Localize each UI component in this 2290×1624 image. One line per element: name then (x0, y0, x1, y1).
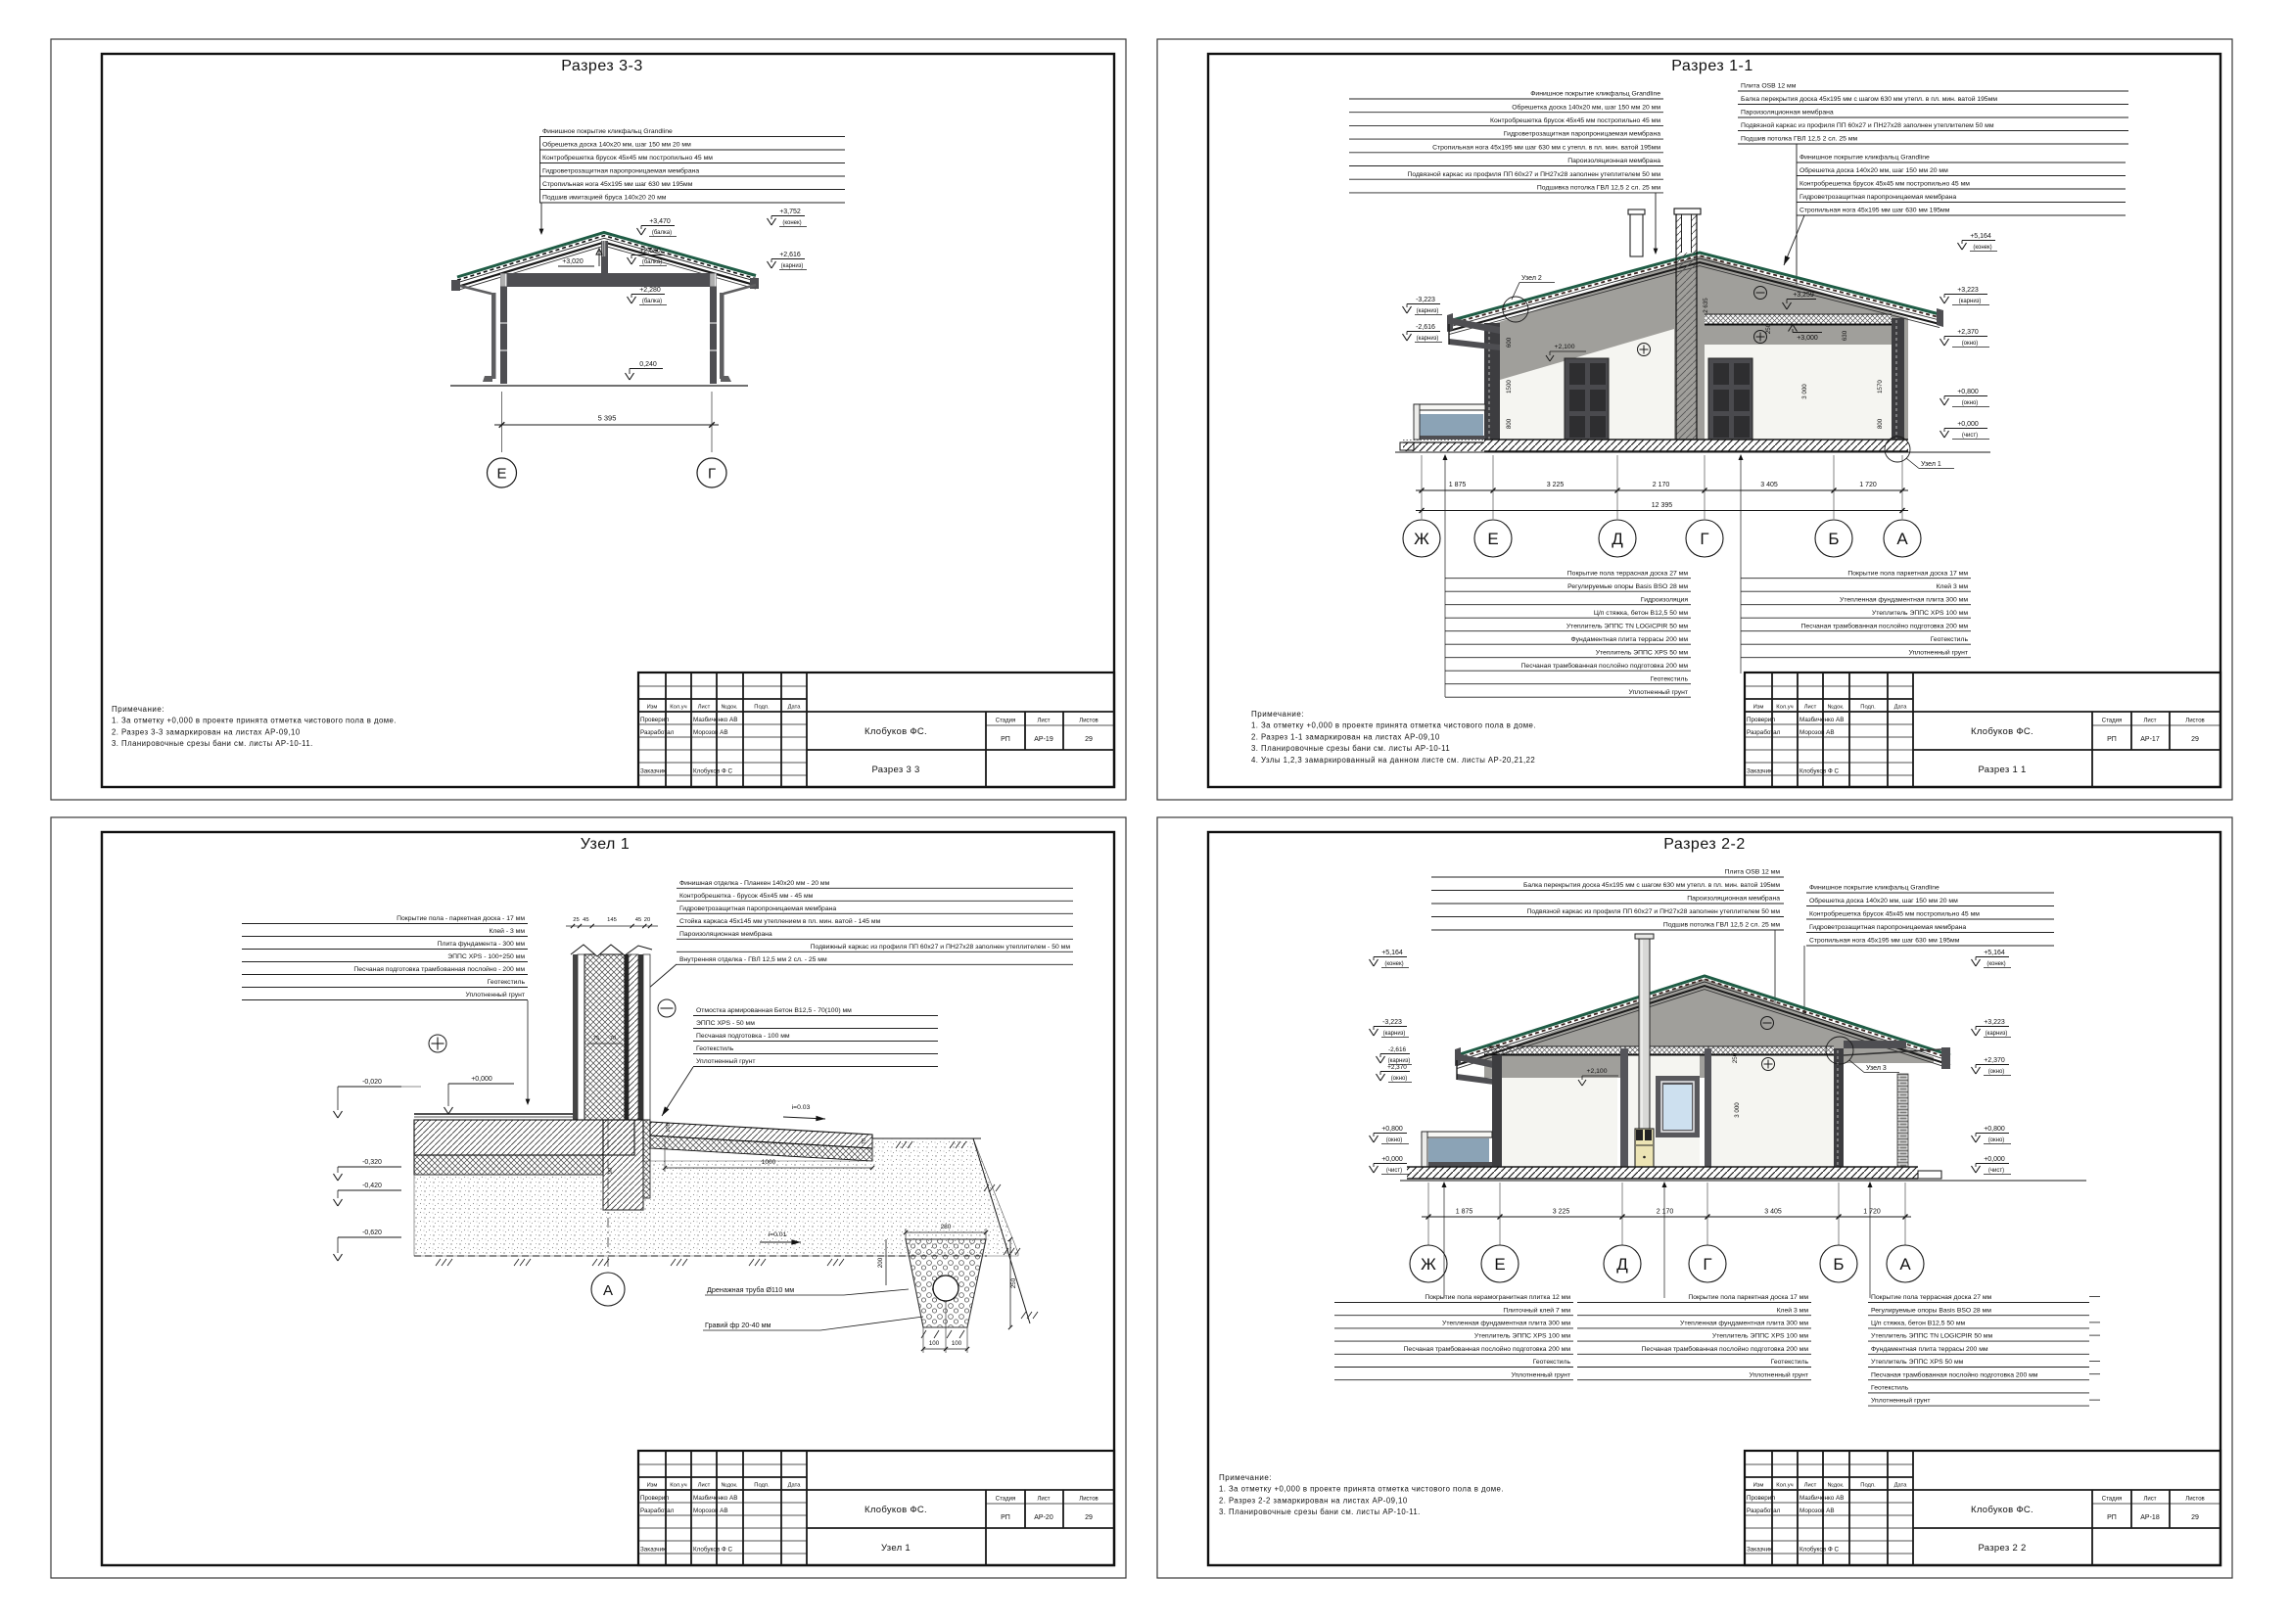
svg-text:Контробрешетка брусок 45х45: Контробрешетка брусок 45х45 мм постропил… (542, 154, 713, 162)
svg-text:Изм: Изм (647, 1483, 658, 1489)
svg-text:Стропильная нога 45х195 мм шаг: Стропильная нога 45х195 мм шаг 630 мм 19… (542, 181, 693, 188)
svg-text:(окно): (окно) (1386, 1137, 1403, 1143)
svg-text:Разрез 1-1: Разрез 1-1 (1671, 58, 1753, 74)
svg-text:Утеплитель ЭППС XPS 100 мм: Утеплитель ЭППС XPS 100 мм (1474, 1333, 1570, 1340)
svg-text:Гидроветрозащитная паропроница: Гидроветрозащитная паропроницаемая мембр… (1504, 130, 1660, 138)
svg-text:Мазбиченко АВ: Мазбиченко АВ (693, 1494, 737, 1502)
svg-text:Уплотненный грунт: Уплотненный грунт (696, 1057, 756, 1065)
svg-text:Подвязной каркас из профиля ПП: Подвязной каркас из профиля ПП 60х27 и П… (1741, 121, 1994, 129)
svg-text:А: А (1896, 530, 1908, 548)
svg-text:Подшивка потолка ГВЛ 12,5: Подшивка потолка ГВЛ 12,5 2 сл. 25 мм (1537, 185, 1660, 192)
svg-text:Пароизоляционная мембрана: Пароизоляционная мембрана (679, 930, 772, 938)
svg-text:Уплотненный грунт: Уплотненный грунт (465, 991, 525, 998)
svg-text:(балка): (балка) (652, 230, 672, 236)
svg-text:Песчаная трамбованная послойно: Песчаная трамбованная послойно подготовк… (1404, 1345, 1571, 1353)
svg-text:Клобуков ФС.: Клобуков ФС. (865, 1505, 927, 1515)
svg-text:Изм: Изм (1753, 1483, 1764, 1489)
svg-text:Подвязной каркас из профиля ПП: Подвязной каркас из профиля ПП 60х27 и П… (1407, 170, 1660, 178)
svg-text:Кол.уч: Кол.уч (1776, 1483, 1793, 1489)
svg-text:А: А (1899, 1255, 1911, 1274)
svg-text:2. Разрез 2-2 замаркирован на: 2. Разрез 2-2 замаркирован на листах АР-… (1219, 1496, 1408, 1505)
svg-text:Проверил: Проверил (1747, 717, 1775, 723)
svg-text:1500: 1500 (1506, 380, 1513, 394)
svg-text:Заказчик: Заказчик (1747, 1547, 1772, 1554)
svg-text:Клобуков ФС.: Клобуков ФС. (1971, 726, 2033, 737)
svg-text:Морозов АВ: Морозов АВ (1799, 1508, 1835, 1514)
svg-text:(карниз): (карниз) (1417, 308, 1439, 314)
svg-text:ЭППС XPS - 50 мм: ЭППС XPS - 50 мм (696, 1020, 755, 1027)
svg-text:А: А (603, 1282, 613, 1299)
svg-text:(карниз): (карниз) (1383, 1031, 1406, 1037)
svg-text:i=0.03: i=0.03 (792, 1104, 811, 1111)
svg-text:3 405: 3 405 (1764, 1209, 1782, 1216)
svg-text:Стропильная нога 45х195 мм шаг: Стропильная нога 45х195 мм шаг 630 мм 19… (1799, 208, 1950, 214)
svg-text:Дата: Дата (788, 1483, 802, 1489)
svg-text:Проверил: Проверил (640, 1495, 669, 1502)
svg-text:(конек): (конек) (1384, 961, 1403, 967)
svg-text:ЭППС XPS - 100÷250 мм: ЭППС XPS - 100÷250 мм (447, 953, 525, 960)
svg-text:Финишное покрытие кликфальц: Финишное покрытие кликфальц Grandline (1530, 91, 1660, 98)
svg-text:Кол.уч: Кол.уч (1776, 705, 1793, 711)
svg-text:+3,223: +3,223 (1957, 287, 1979, 294)
svg-text:Плита OSB 12 мм: Плита OSB 12 мм (1741, 83, 1797, 90)
svg-text:1 875: 1 875 (1449, 482, 1467, 488)
svg-text:Уплотненный грунт: Уплотненный грунт (1749, 1370, 1808, 1378)
svg-text:Разработал: Разработал (640, 1507, 675, 1514)
svg-text:0,240: 0,240 (639, 361, 657, 368)
svg-text:Разрез 1 1: Разрез 1 1 (1978, 765, 2026, 775)
svg-text:(карниз): (карниз) (1417, 336, 1439, 342)
svg-text:250: 250 (1765, 323, 1772, 334)
svg-text:Песчаная трамбованная послойно: Песчаная трамбованная послойно подготовк… (1521, 662, 1689, 670)
svg-text:29: 29 (1085, 1514, 1093, 1521)
svg-text:Песчаная подготовка трамбованн: Песчаная подготовка трамбованная послойн… (353, 965, 525, 973)
svg-text:Гравий фр 20-40 мм: Гравий фр 20-40 мм (705, 1321, 771, 1329)
svg-text:Заказчик: Заказчик (640, 768, 666, 775)
svg-text:Кол.уч: Кол.уч (670, 705, 686, 711)
svg-text:Плиточный клей 7 мм: Плиточный клей 7 мм (1503, 1306, 1570, 1314)
svg-text:+2,370: +2,370 (1387, 1064, 1407, 1071)
svg-text:Утеплитель ЭППС XPS 50 мм: Утеплитель ЭППС XPS 50 мм (1871, 1359, 1964, 1366)
svg-text:АР-17: АР-17 (2140, 736, 2160, 743)
svg-text:Стадия: Стадия (2102, 1497, 2122, 1503)
svg-text:(конек): (конек) (1973, 245, 1991, 251)
svg-text:Лист: Лист (1804, 1483, 1817, 1489)
svg-text:+3,000: +3,000 (1797, 335, 1818, 342)
svg-text:Лист: Лист (2143, 1497, 2156, 1503)
svg-text:АР-18: АР-18 (2140, 1514, 2160, 1521)
svg-text:Клобуков Ф С: Клобуков Ф С (1799, 767, 1839, 775)
svg-text:250: 250 (1010, 1277, 1017, 1288)
svg-text:1. За отметку +0,000 в проекте: 1. За отметку +0,000 в проекте принята о… (1251, 721, 1536, 730)
svg-text:Подп.: Подп. (754, 705, 770, 711)
svg-text:Стадия: Стадия (996, 719, 1015, 724)
svg-text:+0,000: +0,000 (1984, 1156, 2005, 1163)
svg-text:+0,800: +0,800 (1381, 1126, 1403, 1133)
svg-text:Разрез 2 2: Разрез 2 2 (1978, 1543, 2026, 1554)
svg-text:Подшив потолка ГВЛ 12,5 2: Подшив потолка ГВЛ 12,5 2 сл. 25 мм (1663, 922, 1781, 929)
svg-text:-0,620: -0,620 (362, 1230, 382, 1236)
svg-text:Стойка каркаса 45х145 мм утепл: Стойка каркаса 45х145 мм утеплением в пл… (679, 917, 881, 925)
svg-text:Стропильная нога 45х195 мм шаг: Стропильная нога 45х195 мм шаг 630 мм 19… (1809, 938, 1960, 945)
svg-text:Е: Е (496, 466, 506, 483)
svg-text:Покрытие пола паркетная дос: Покрытие пола паркетная доска 17 мм (1847, 570, 1968, 577)
svg-text:Геотекстиль: Геотекстиль (1771, 1359, 1809, 1366)
svg-text:Фундаментная плита террасы: Фундаментная плита террасы 200 мм (1871, 1346, 1988, 1353)
svg-text:1 720: 1 720 (1863, 1209, 1881, 1216)
svg-text:Гидроизоляция: Гидроизоляция (1641, 596, 1688, 603)
svg-text:70: 70 (862, 1138, 867, 1144)
svg-text:Морозов АВ: Морозов АВ (693, 729, 728, 736)
svg-text:Листов: Листов (1079, 719, 1098, 724)
svg-text:Разрез 3-3: Разрез 3-3 (561, 58, 643, 74)
svg-text:+2,680: +2,680 (639, 248, 661, 255)
svg-text:АР-19: АР-19 (1034, 736, 1053, 743)
svg-text:-0,420: -0,420 (362, 1183, 382, 1189)
svg-text:Дата: Дата (1894, 1483, 1908, 1489)
svg-text:Подп.: Подп. (1860, 705, 1876, 711)
svg-text:600: 600 (1506, 337, 1513, 348)
svg-text:Геотекстиль: Геотекстиль (488, 979, 526, 986)
svg-text:-3,223: -3,223 (1382, 1019, 1402, 1026)
svg-text:Примечание:: Примечание: (112, 705, 164, 714)
svg-text:(карниз): (карниз) (1959, 299, 1982, 304)
svg-text:Е: Е (1487, 530, 1498, 548)
svg-text:Проверил: Проверил (1747, 1495, 1775, 1502)
svg-text:(карниз): (карниз) (1986, 1031, 2008, 1037)
svg-text:(чист): (чист) (1386, 1168, 1402, 1174)
svg-text:Стадия: Стадия (996, 1497, 1015, 1503)
svg-text:630: 630 (1842, 330, 1848, 341)
svg-text:Дата: Дата (788, 705, 802, 711)
svg-text:Клобуков Ф С: Клобуков Ф С (693, 1546, 732, 1554)
svg-text:Обрешетка доска 140х20 мм,: Обрешетка доска 140х20 мм, шаг 150 мм 20… (1799, 166, 1948, 174)
svg-text:Песчаная подготовка - 100 мм: Песчаная подготовка - 100 мм (696, 1033, 790, 1040)
svg-text:800: 800 (1877, 418, 1884, 429)
svg-text:Внутренняя отделка - ГВЛ 12,5: Внутренняя отделка - ГВЛ 12,5 мм 2 сл. -… (679, 956, 827, 963)
svg-text:Проверил: Проверил (640, 717, 669, 723)
svg-text:Б: Б (1833, 1255, 1844, 1274)
svg-text:Геотекстиль: Геотекстиль (696, 1045, 734, 1052)
svg-text:Е: Е (1494, 1255, 1505, 1274)
svg-text:Отмостка армированная Бетон В: Отмостка армированная Бетон В12,5 - 70(1… (696, 1007, 852, 1014)
svg-text:+0,000: +0,000 (471, 1076, 492, 1083)
svg-text:Лист: Лист (2143, 719, 2156, 724)
svg-text:Узел 1: Узел 1 (581, 836, 630, 853)
svg-text:Ж: Ж (1421, 1255, 1436, 1274)
svg-text:12 395: 12 395 (1652, 502, 1673, 509)
svg-text:+0,800: +0,800 (1957, 389, 1979, 395)
svg-text:-2,616: -2,616 (1388, 1046, 1407, 1053)
svg-text:(балка): (балка) (642, 299, 662, 304)
svg-text:-0,020: -0,020 (362, 1079, 382, 1086)
svg-text:Г: Г (1700, 530, 1708, 548)
svg-text:Разработал: Разработал (1747, 1507, 1781, 1514)
svg-text:145: 145 (607, 917, 617, 923)
svg-text:+0,000: +0,000 (1381, 1156, 1403, 1163)
svg-text:Лист: Лист (698, 1483, 711, 1489)
svg-text:Лист: Лист (1037, 719, 1050, 724)
svg-text:1 720: 1 720 (1859, 482, 1877, 488)
svg-text:Примечание:: Примечание: (1251, 710, 1304, 719)
svg-text:+2,100: +2,100 (1555, 344, 1575, 350)
svg-text:1 875: 1 875 (1456, 1209, 1473, 1216)
svg-text:70: 70 (610, 1036, 616, 1042)
svg-text:(окно): (окно) (1988, 1069, 2005, 1075)
svg-text:Гидроветрозащитная паропроница: Гидроветрозащитная паропроницаемая мембр… (679, 905, 836, 912)
svg-text:Стадия: Стадия (2102, 719, 2122, 724)
svg-text:Разрез 3 3: Разрез 3 3 (871, 765, 919, 775)
svg-text:-3,223: -3,223 (1416, 297, 1435, 303)
svg-text:Клобуков ФС.: Клобуков ФС. (1971, 1505, 2033, 1515)
svg-text:Клобуков Ф С: Клобуков Ф С (693, 767, 732, 775)
svg-text:Ж: Ж (1414, 530, 1429, 548)
svg-text:РП: РП (1001, 736, 1010, 743)
svg-text:Изм: Изм (647, 705, 658, 711)
svg-text:Б: Б (1828, 530, 1839, 548)
svg-text:75: 75 (593, 1036, 599, 1042)
svg-text:+0,800: +0,800 (1984, 1126, 2005, 1133)
svg-text:(окно): (окно) (1962, 400, 1979, 406)
svg-text:2 170: 2 170 (1657, 1209, 1674, 1216)
svg-text:2. Разрез 3-3 замаркирован на: 2. Разрез 3-3 замаркирован на листах АР-… (112, 727, 301, 736)
svg-text:Геотекстиль: Геотекстиль (1871, 1385, 1909, 1392)
svg-text:(окно): (окно) (1391, 1076, 1408, 1082)
svg-text:+3,259: +3,259 (1793, 292, 1814, 299)
svg-text:Пароизоляционная мембрана: Пароизоляционная мембрана (1687, 895, 1780, 903)
svg-text:Узел 1: Узел 1 (1921, 461, 1941, 468)
svg-text:Пароизоляционная мембрана: Пароизоляционная мембрана (1567, 157, 1660, 164)
svg-text:Финишное покрытие кликфальц: Финишное покрытие кликфальц Grandline (1809, 885, 1939, 892)
svg-text:Мазбиченко АВ: Мазбиченко АВ (693, 716, 737, 723)
svg-text:Морозов АВ: Морозов АВ (1799, 729, 1835, 736)
svg-text:(конек): (конек) (782, 220, 801, 226)
svg-text:Кол.уч: Кол.уч (670, 1483, 686, 1489)
svg-text:3 225: 3 225 (1547, 482, 1565, 488)
svg-text:Покрытие пола - паркетная доск: Покрытие пола - паркетная доска - 17 мм (397, 915, 525, 922)
svg-text:2 170: 2 170 (1653, 482, 1670, 488)
svg-text:(окно): (окно) (1988, 1137, 2005, 1143)
svg-text:Заказчик: Заказчик (1747, 768, 1772, 775)
svg-text:Покрытие пола паркетная дос: Покрытие пола паркетная доска 17 мм (1688, 1294, 1808, 1301)
svg-text:Обрешетка доска 140х20 мм,: Обрешетка доска 140х20 мм, шаг 150 мм 20… (1512, 103, 1660, 111)
svg-text:Геотекстиль: Геотекстиль (1533, 1359, 1571, 1366)
svg-text:Утеплитель ЭППС TN LOGICPIR: Утеплитель ЭППС TN LOGICPIR 50 мм (1871, 1333, 1992, 1340)
svg-text:45: 45 (635, 917, 641, 923)
svg-text:Изм: Изм (1753, 705, 1764, 711)
svg-text:Геотекстиль: Геотекстиль (1931, 636, 1969, 643)
svg-text:Пароизоляционная мембрана: Пароизоляционная мембрана (1741, 109, 1834, 116)
svg-text:РП: РП (1001, 1514, 1010, 1521)
svg-text:Контробрешетка - брусок 45х45: Контробрешетка - брусок 45х45 мм - 45 мм (679, 892, 814, 900)
svg-text:90: 90 (608, 1168, 614, 1174)
svg-text:Узел 3: Узел 3 (1866, 1065, 1887, 1072)
svg-text:№док.: №док. (1828, 1483, 1845, 1489)
svg-text:Финишная отделка - Планкен 140: Финишная отделка - Планкен 140х20 мм - 2… (679, 880, 830, 887)
svg-text:200: 200 (877, 1257, 884, 1268)
svg-text:Контробрешетка брусок 45х45: Контробрешетка брусок 45х45 мм постропил… (1799, 180, 1970, 188)
svg-text:АР-20: АР-20 (1034, 1514, 1053, 1521)
svg-text:РП: РП (2107, 736, 2117, 743)
svg-text:Подп.: Подп. (1860, 1483, 1876, 1489)
svg-text:Утепленная фундаментная плита: Утепленная фундаментная плита 300 мм (1442, 1321, 1570, 1327)
svg-text:+3,020: +3,020 (562, 258, 584, 265)
svg-text:Узел 2: Узел 2 (1521, 275, 1542, 282)
svg-text:Разрез 2-2: Разрез 2-2 (1663, 836, 1746, 853)
svg-text:-2,616: -2,616 (1416, 324, 1435, 331)
svg-text:+3,223: +3,223 (1984, 1019, 2005, 1026)
svg-text:Обрешетка доска 140х20 мм,: Обрешетка доска 140х20 мм, шаг 150 мм 20… (542, 141, 691, 149)
svg-text:45: 45 (583, 917, 588, 923)
svg-text:Балка перекрытия доска 45х1: Балка перекрытия доска 45х195 мм с шагом… (1741, 95, 1997, 103)
svg-text:Г: Г (708, 466, 716, 483)
svg-text:Покрытие пола террасная дос: Покрытие пола террасная доска 27 мм (1871, 1294, 1992, 1301)
svg-text:3. Планировочные срезы бани см: 3. Планировочные срезы бани см. листы АР… (1251, 744, 1450, 753)
svg-text:Регулируемые опоры Basis BSO: Регулируемые опоры Basis BSO 28 мм (1567, 583, 1688, 590)
svg-text:+3,470: +3,470 (649, 218, 671, 225)
svg-text:(окно): (окно) (1962, 341, 1979, 347)
svg-text:Лист: Лист (698, 705, 711, 711)
svg-text:Клобуков ФС.: Клобуков ФС. (865, 726, 927, 737)
svg-text:Подвязной каркас из профиля ПП: Подвязной каркас из профиля ПП 60х27 и П… (1526, 907, 1780, 915)
svg-text:Гидроветрозащитная паропроница: Гидроветрозащитная паропроницаемая мембр… (1809, 923, 1966, 931)
svg-text:Узел 1: Узел 1 (881, 1543, 911, 1554)
svg-text:+0,000: +0,000 (1957, 421, 1979, 428)
svg-text:Финишное покрытие кликфальц: Финишное покрытие кликфальц Grandline (1799, 155, 1930, 162)
svg-text:3 225: 3 225 (1553, 1209, 1570, 1216)
svg-text:-0,320: -0,320 (362, 1159, 382, 1166)
svg-text:№док.: №док. (722, 705, 738, 711)
svg-text:29: 29 (2191, 736, 2199, 743)
svg-text:Д: Д (1612, 530, 1623, 548)
svg-text:Уплотненный грунт: Уплотненный грунт (1511, 1370, 1570, 1378)
svg-text:Песчаная трамбованная послойно: Песчаная трамбованная послойно подготовк… (1801, 622, 1969, 629)
svg-text:5 395: 5 395 (598, 414, 617, 423)
svg-text:100: 100 (929, 1340, 940, 1347)
svg-text:Утеплитель ЭППС TN LOGICPIR: Утеплитель ЭППС TN LOGICPIR 50 мм (1566, 623, 1688, 629)
svg-text:Балка перекрытия доска 45х1: Балка перекрытия доска 45х195 мм с шагом… (1523, 881, 1780, 889)
svg-text:Клей - 3 мм: Клей - 3 мм (489, 927, 525, 935)
svg-text:+2,370: +2,370 (1984, 1057, 2005, 1064)
svg-text:+5,164: +5,164 (1984, 950, 2005, 956)
svg-text:РП: РП (2107, 1514, 2117, 1521)
svg-text:1570: 1570 (1877, 380, 1884, 394)
svg-text:(конек): (конек) (1986, 961, 2005, 967)
svg-text:Контробрешетка брусок 45х45: Контробрешетка брусок 45х45 мм постропил… (1490, 116, 1660, 124)
svg-text:Гидроветрозащитная паропроница: Гидроветрозащитная паропроницаемая мембр… (542, 167, 699, 175)
svg-text:2. Разрез 1-1 замаркирован на: 2. Разрез 1-1 замаркирован на листах АР-… (1251, 732, 1440, 741)
svg-text:Песчаная трамбованная послойно: Песчаная трамбованная послойно подготовк… (1871, 1370, 2038, 1378)
svg-text:Плита фундамента - 300 мм: Плита фундамента - 300 мм (438, 941, 526, 948)
svg-text:4. Узлы 1,2,3 замаркированный: 4. Узлы 1,2,3 замаркированный на данном … (1251, 756, 1535, 765)
svg-text:Покрытие пола керамогранитн: Покрытие пола керамогранитная плитка 12 … (1425, 1294, 1570, 1301)
svg-text:(балка): (балка) (642, 259, 662, 265)
svg-text:(чист): (чист) (1962, 433, 1978, 439)
svg-text:Листов: Листов (2185, 1497, 2205, 1503)
svg-text:Уплотненный грунт: Уплотненный грунт (1908, 648, 1968, 656)
svg-text:+3,752: +3,752 (779, 209, 801, 215)
svg-text:Финишное покрытие кликфальц: Финишное покрытие кликфальц Grandline (542, 128, 673, 135)
svg-text:Подшив имитацией бруса 140х20: Подшив имитацией бруса 140х20 20 мм (542, 194, 667, 202)
svg-text:Примечание:: Примечание: (1219, 1473, 1272, 1482)
svg-text:Заказчик: Заказчик (640, 1547, 666, 1554)
svg-text:№док.: №док. (1828, 705, 1845, 711)
svg-text:Г: Г (1703, 1255, 1711, 1274)
svg-text:25: 25 (573, 917, 579, 923)
svg-text:1. За отметку +0,000 в проекте: 1. За отметку +0,000 в проекте принята о… (1219, 1485, 1504, 1494)
svg-text:Стропильная нога 45х195 мм шаг: Стропильная нога 45х195 мм шаг 630 мм с … (1432, 143, 1660, 151)
svg-text:Клей 3 мм: Клей 3 мм (1937, 582, 1969, 590)
svg-text:Листов: Листов (1079, 1497, 1098, 1503)
svg-text:№док.: №док. (722, 1483, 738, 1489)
svg-text:1000: 1000 (762, 1159, 776, 1166)
svg-text:Разработал: Разработал (640, 728, 675, 736)
svg-text:100: 100 (952, 1340, 962, 1347)
svg-text:Разработал: Разработал (1747, 728, 1781, 736)
svg-text:3. Планировочные срезы бани см: 3. Планировочные срезы бани см. листы АР… (112, 739, 313, 748)
svg-text:100: 100 (666, 1123, 672, 1133)
svg-text:Утеплитель ЭППС XPS 50 мм: Утеплитель ЭППС XPS 50 мм (1596, 649, 1689, 656)
svg-text:Мазбиченко АВ: Мазбиченко АВ (1799, 716, 1844, 723)
svg-text:Утеплитель ЭППС XPS 100 мм: Утеплитель ЭППС XPS 100 мм (1872, 610, 1968, 617)
svg-text:Ц/п стяжка, бетон В12,5 50: Ц/п стяжка, бетон В12,5 50 мм (1594, 609, 1689, 617)
svg-text:Лист: Лист (1037, 1497, 1050, 1503)
svg-text:3 000: 3 000 (1734, 1102, 1741, 1118)
svg-text:(чист): (чист) (1988, 1168, 2004, 1174)
svg-text:+2,100: +2,100 (1587, 1068, 1608, 1075)
svg-text:Д: Д (1616, 1255, 1628, 1274)
svg-text:i=0.01: i=0.01 (769, 1231, 787, 1238)
svg-text:Уплотненный грунт: Уплотненный грунт (1628, 688, 1688, 696)
svg-text:Песчаная трамбованная послойно: Песчаная трамбованная послойно подготовк… (1642, 1345, 1809, 1353)
svg-text:3. Планировочные срезы бани см: 3. Планировочные срезы бани см. листы АР… (1219, 1508, 1421, 1516)
svg-text:Листов: Листов (2185, 719, 2205, 724)
svg-text:Мазбиченко АВ: Мазбиченко АВ (1799, 1494, 1844, 1502)
svg-text:Ц/п стяжка, бетон В12,5 50: Ц/п стяжка, бетон В12,5 50 мм (1871, 1320, 1966, 1327)
svg-text:+2,280: +2,280 (639, 287, 661, 294)
svg-text:3 405: 3 405 (1760, 482, 1778, 488)
svg-text:+5,164: +5,164 (1970, 233, 1991, 240)
svg-text:Обрешетка доска 140х20 мм,: Обрешетка доска 140х20 мм, шаг 150 мм 20… (1809, 897, 1958, 905)
svg-text:Регулируемые опоры Basis BSO: Регулируемые опоры Basis BSO 28 мм (1871, 1307, 1991, 1314)
svg-text:Утепленная фундаментная плита: Утепленная фундаментная плита 300 мм (1840, 596, 1968, 603)
svg-text:280: 280 (941, 1224, 952, 1230)
svg-text:Морозов АВ: Морозов АВ (693, 1508, 728, 1514)
svg-text:3 000: 3 000 (1801, 384, 1808, 399)
svg-text:20: 20 (644, 917, 650, 923)
svg-text:Подп.: Подп. (754, 1483, 770, 1489)
svg-text:800: 800 (1506, 418, 1513, 429)
svg-text:29: 29 (2191, 1514, 2199, 1521)
svg-text:Дренажная труба Ø110 мм: Дренажная труба Ø110 мм (707, 1285, 794, 1294)
svg-text:Утеплитель ЭППС XPS 100 мм: Утеплитель ЭППС XPS 100 мм (1712, 1333, 1808, 1340)
svg-text:+5,164: +5,164 (1381, 950, 1403, 956)
svg-text:Дата: Дата (1894, 705, 1908, 711)
svg-text:29: 29 (1085, 736, 1093, 743)
svg-text:Гидроветрозащитная паропроница: Гидроветрозащитная паропроницаемая мембр… (1799, 193, 1956, 201)
svg-text:Лист: Лист (1804, 705, 1817, 711)
svg-text:Клей 3 мм: Клей 3 мм (1777, 1306, 1809, 1314)
svg-text:Клобуков Ф С: Клобуков Ф С (1799, 1546, 1839, 1554)
svg-text:1. За отметку +0,000 в проекте: 1. За отметку +0,000 в проекте принята о… (112, 717, 397, 725)
svg-text:+2,370: +2,370 (1957, 329, 1979, 336)
svg-text:Контробрешетка брусок 45х45: Контробрешетка брусок 45х45 мм постропил… (1809, 910, 1980, 918)
svg-text:(карниз): (карниз) (781, 263, 804, 269)
svg-text:250: 250 (1732, 1052, 1739, 1063)
svg-text:Покрытие пола террасная дос: Покрытие пола террасная доска 27 мм (1567, 570, 1689, 577)
svg-text:Фундаментная плита террасы: Фундаментная плита террасы 200 мм (1570, 636, 1688, 643)
svg-text:Подшив потолка ГВЛ 12,5 2: Подшив потолка ГВЛ 12,5 2 сл. 25 мм (1741, 136, 1858, 143)
